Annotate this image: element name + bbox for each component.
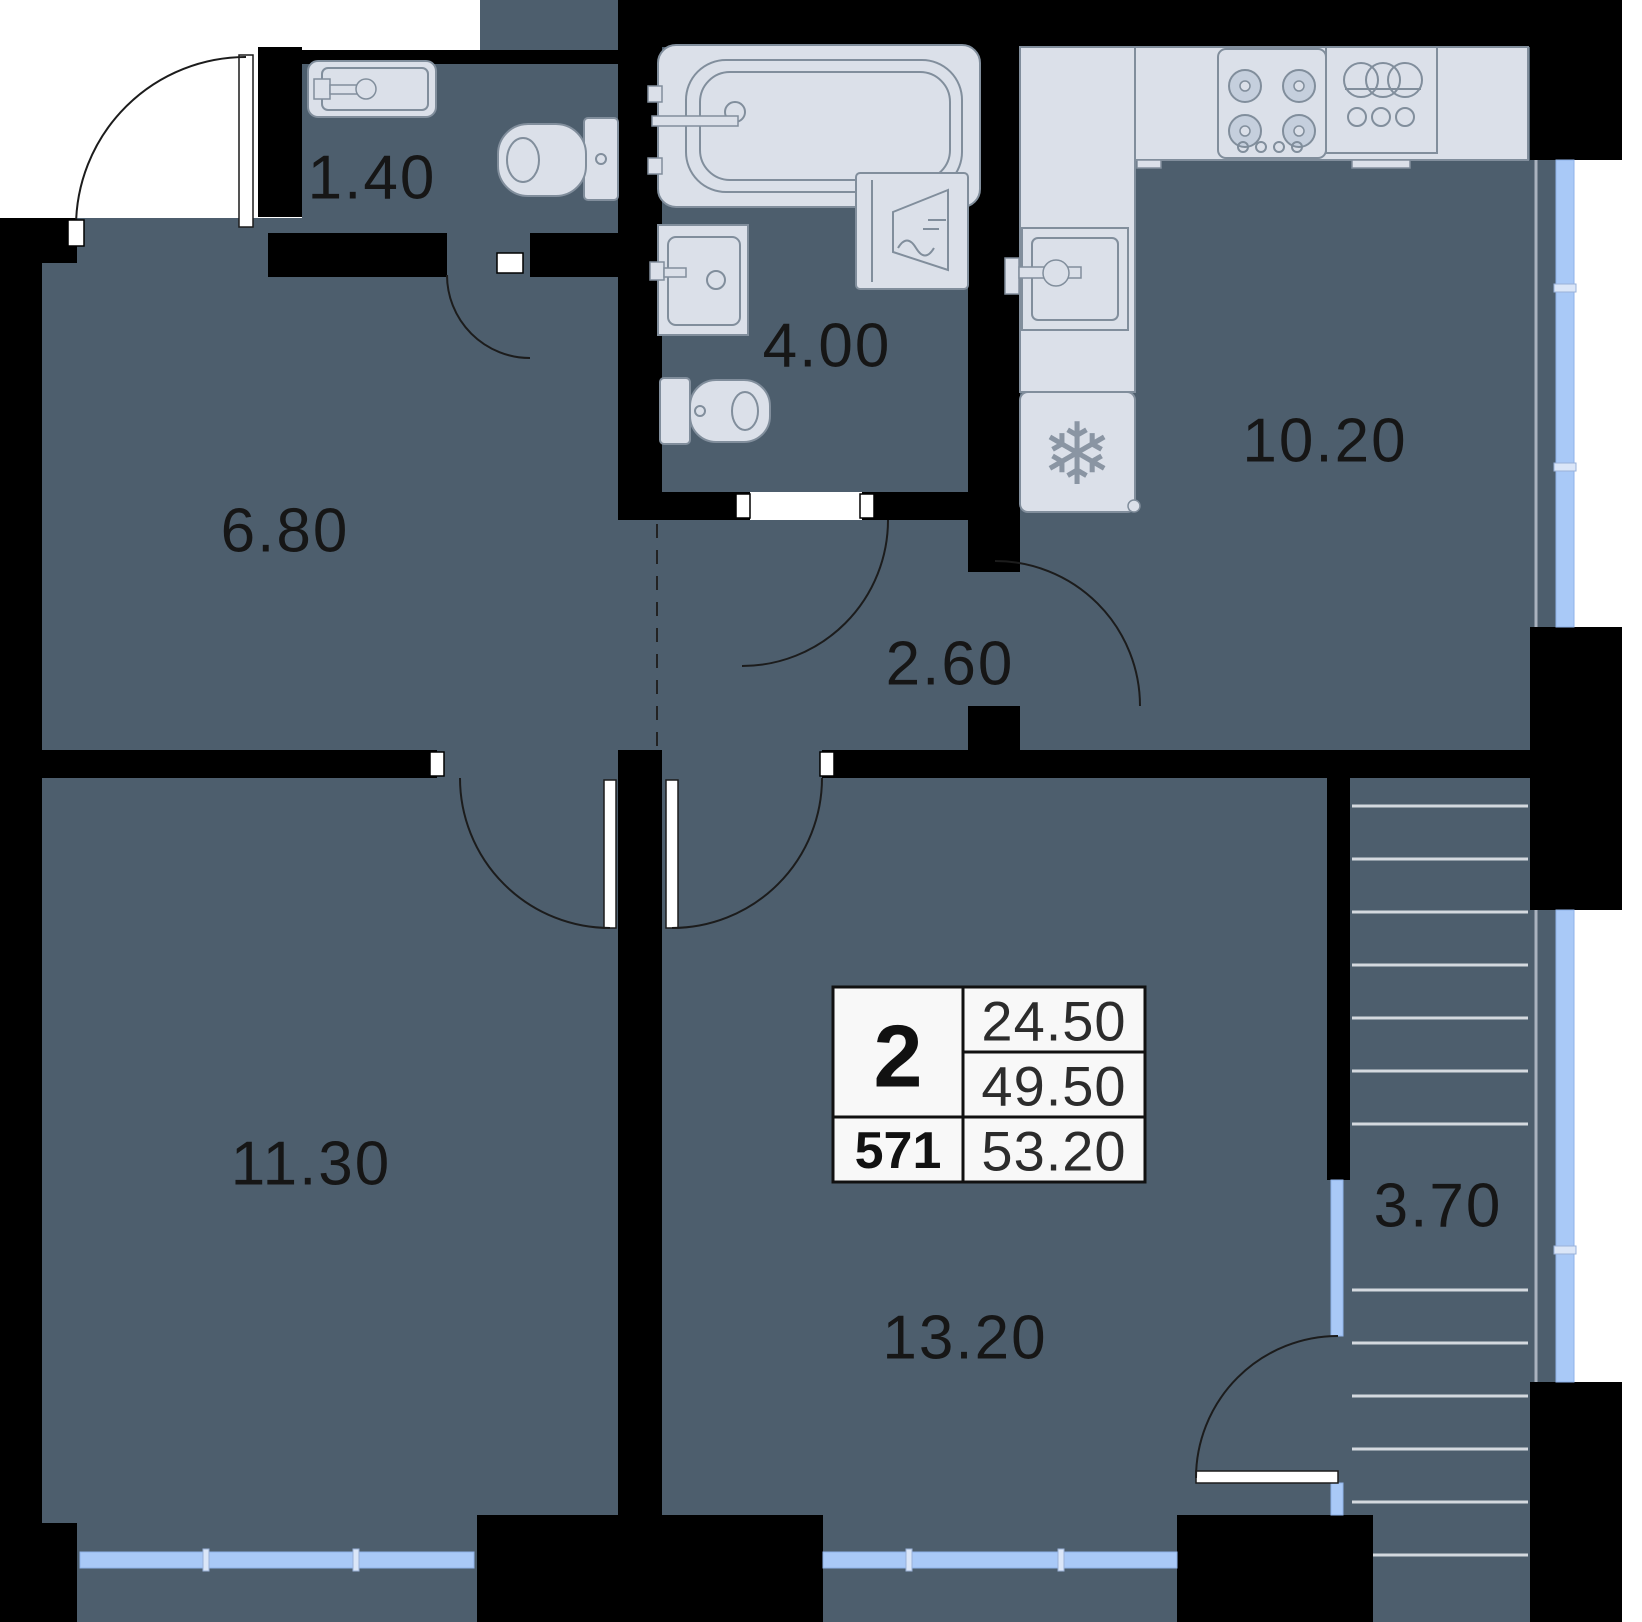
stairs-window (1556, 910, 1574, 1382)
entry-door-arc (76, 57, 246, 227)
stairs-door-leaf (1196, 1471, 1338, 1483)
kitchen-sink (1005, 228, 1128, 330)
bedroom-door-leaf (604, 780, 616, 928)
info-total-area: 53.20 (981, 1120, 1126, 1183)
info-area-without-balcony: 49.50 (981, 1055, 1126, 1118)
label-wc-small: 1.40 (308, 144, 437, 213)
entry-door-leaf (239, 55, 253, 227)
info-rooms-count: 2 (874, 1007, 923, 1106)
fridge: ❄ (1020, 392, 1140, 512)
wc-small-sink (308, 61, 436, 117)
living-room-door-leaf (666, 780, 678, 928)
stairs-glazed-partition-stub (1331, 1483, 1343, 1515)
label-bedroom: 11.30 (231, 1130, 392, 1199)
floor-hall (42, 218, 662, 755)
wc-small-toilet (498, 118, 618, 200)
info-unit-number: 571 (855, 1122, 942, 1180)
bedroom-window (80, 1552, 474, 1568)
floor-kitchen-sill (1530, 160, 1556, 627)
label-hall: 6.80 (221, 497, 350, 566)
label-bathroom: 4.00 (763, 312, 892, 381)
label-living-room: 13.20 (882, 1304, 1047, 1373)
bathroom-sink (650, 225, 748, 335)
floor-stairs-sill (1530, 910, 1556, 1382)
cooker-hood (1326, 47, 1437, 153)
label-stairs: 3.70 (1374, 1172, 1503, 1241)
label-corridor: 2.60 (886, 630, 1015, 699)
stove (1218, 49, 1326, 158)
living-room-window (823, 1552, 1177, 1568)
info-living-area: 24.50 (981, 990, 1126, 1053)
snowflake-icon: ❄ (1041, 405, 1113, 505)
kitchen-window (1556, 160, 1574, 627)
stairs-glazed-partition (1331, 1180, 1343, 1336)
label-kitchen: 10.20 (1242, 407, 1407, 476)
floor-plan: ❄ 1.40 4.00 6.80 2.60 10.20 11.30 13.20 … (0, 0, 1642, 1622)
info-box: 2 571 24.50 49.50 53.20 (833, 987, 1145, 1183)
floor-shaft (480, 0, 618, 52)
bathroom-toilet (660, 378, 770, 444)
washing-machine (856, 173, 968, 289)
floor-living-room (662, 750, 1350, 1622)
